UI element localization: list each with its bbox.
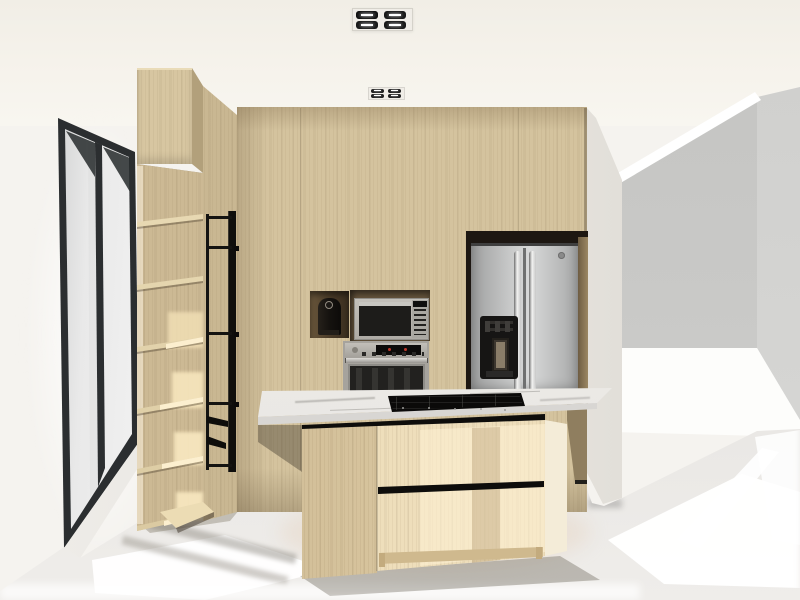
cooktop-knob	[504, 409, 506, 411]
fridge-dispenser-icons	[485, 321, 513, 332]
oven-knob	[352, 347, 358, 353]
light-led	[361, 24, 373, 26]
microwave-display	[413, 301, 427, 307]
light-led	[361, 14, 373, 16]
light-led	[391, 95, 398, 96]
light-led	[389, 24, 401, 26]
black-frame-knob	[234, 246, 239, 251]
black-frame-rung	[206, 402, 232, 405]
black-frame-left-bar	[206, 214, 209, 470]
back-wall-left-shade	[237, 107, 267, 512]
oven-indicator-dot	[388, 348, 391, 351]
microwave-buttons	[414, 309, 426, 335]
kitchen-render	[0, 0, 800, 600]
black-frame-rung	[206, 216, 232, 219]
panel-seam-2	[518, 108, 519, 232]
back-wall-top-shadow	[237, 107, 587, 131]
black-frame-knob	[234, 402, 239, 407]
cooktop-knob	[480, 408, 482, 410]
island-toe-leg	[379, 553, 385, 567]
fridge-handle-right	[529, 251, 536, 396]
light-led	[389, 14, 401, 16]
light-led	[391, 90, 398, 91]
cooktop-knob	[454, 408, 456, 410]
light-led	[374, 90, 381, 91]
cooktop-knob	[402, 407, 404, 409]
behind-island-gap-shadow	[575, 480, 587, 484]
light-led	[374, 95, 381, 96]
fridge-center-gap	[523, 248, 526, 398]
fridge-brand-badge	[558, 252, 565, 259]
fridge-dispenser-tray	[486, 371, 513, 377]
oven-door-reflection	[356, 368, 416, 393]
oven-handle	[346, 358, 427, 363]
island-toe-leg	[536, 547, 542, 559]
fridge-recess-right-jamb	[578, 237, 588, 404]
coffee-machine-dial	[325, 301, 333, 309]
microwave-door-top-bar	[359, 302, 411, 306]
black-frame-knob	[234, 332, 239, 337]
cabinet-upper-box	[137, 68, 192, 164]
black-frame-rung	[206, 246, 232, 249]
oven-indicator-dot	[404, 348, 407, 351]
coffee-machine-tray	[320, 330, 339, 335]
cooktop-knob	[428, 407, 430, 409]
fridge-dispenser-slot-light	[496, 342, 505, 368]
black-frame-rung	[206, 464, 232, 467]
oven-button-row	[362, 352, 424, 356]
black-frame-rung	[206, 332, 232, 335]
microwave-door	[359, 302, 411, 336]
